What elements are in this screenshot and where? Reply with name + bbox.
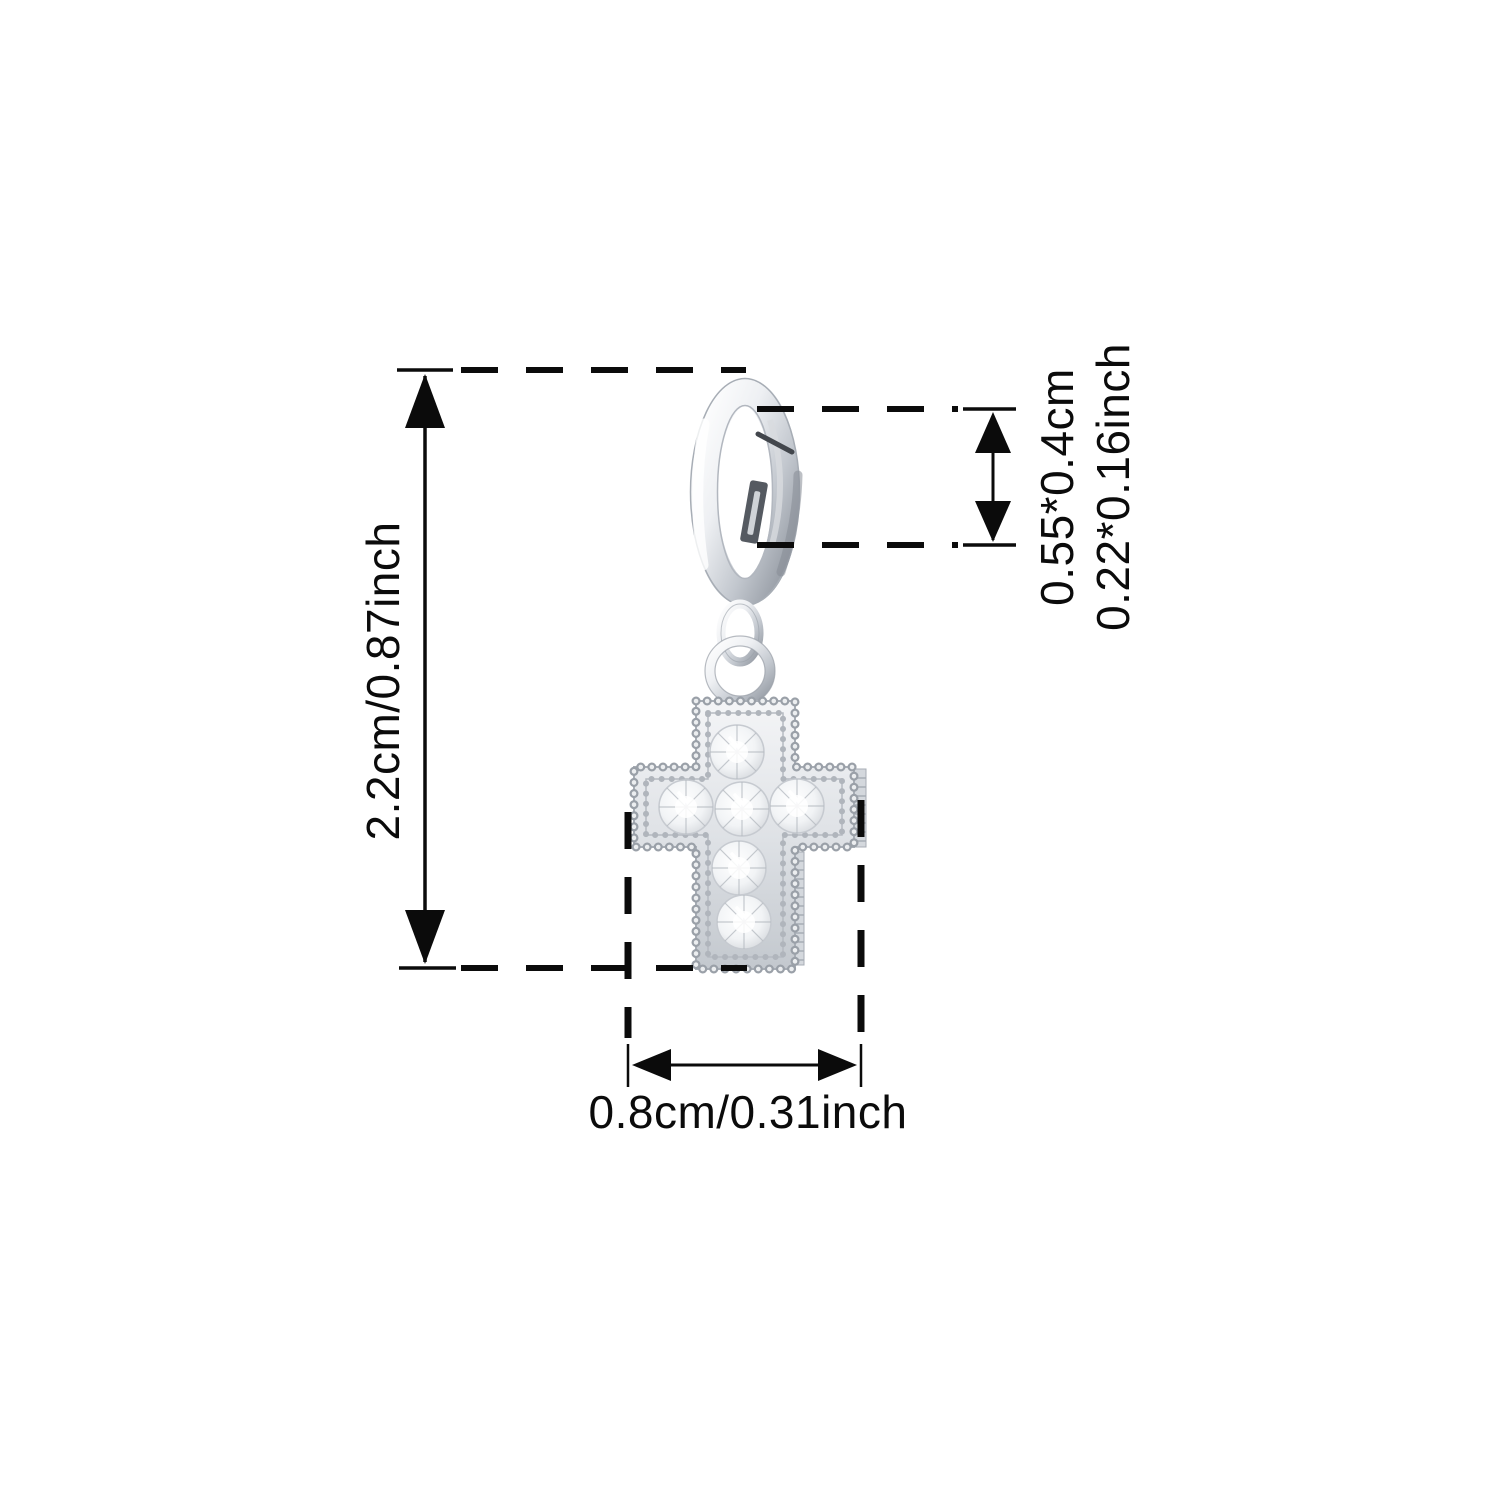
clasp-ring — [691, 379, 800, 606]
cz-stone — [715, 782, 769, 836]
arrow-down-icon — [975, 501, 1011, 542]
clasp-dimension-label-cm: 0.55*0.4cm — [1030, 368, 1084, 606]
arrow-up-icon — [405, 374, 445, 428]
cz-stone — [717, 895, 771, 949]
height-dimension-label: 2.2cm/0.87inch — [356, 522, 410, 841]
diagram-canvas: 2.2cm/0.87inch 0.55*0.4cm 0.22*0.16inch … — [0, 0, 1500, 1500]
width-dimension-label: 0.8cm/0.31inch — [589, 1085, 908, 1139]
clasp-latch — [740, 480, 768, 544]
arrow-right-icon — [818, 1049, 857, 1081]
dimension-diagram-graphic — [0, 0, 1500, 1500]
arrow-up-icon — [975, 412, 1011, 453]
clasp-dimension-label-inch: 0.22*0.16inch — [1086, 343, 1140, 631]
cz-stone — [770, 779, 824, 833]
cz-stone — [712, 841, 766, 895]
charm-pendant-illustration — [634, 379, 866, 970]
cross-charm — [634, 701, 866, 969]
jump-ring — [710, 641, 770, 701]
cz-stone — [710, 725, 764, 779]
arrow-left-icon — [632, 1049, 671, 1081]
arrow-down-icon — [405, 910, 445, 964]
cz-stone — [659, 780, 713, 834]
